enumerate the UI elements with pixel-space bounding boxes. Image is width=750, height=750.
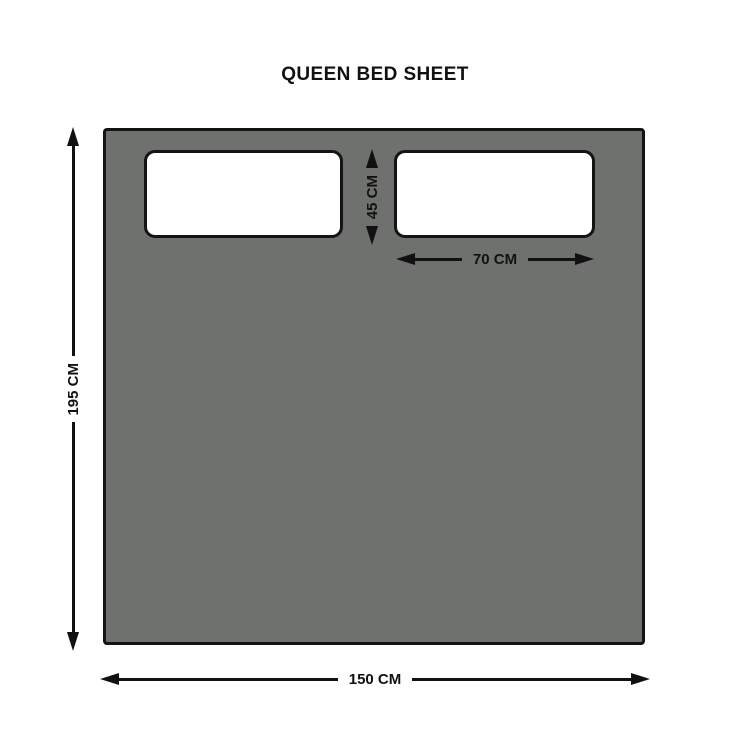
diagram-canvas: QUEEN BED SHEET 195 CM 150 CM 45 CM 70 C… — [0, 0, 750, 750]
sheet-height-label: 195 CM — [65, 363, 82, 416]
arrowhead-left-icon — [396, 253, 415, 265]
dimension-line — [72, 146, 75, 356]
arrowhead-right-icon — [575, 253, 594, 265]
dimension-line — [415, 258, 462, 261]
dimension-line — [412, 678, 631, 681]
arrowhead-right-icon — [631, 673, 650, 685]
dimension-line — [528, 258, 575, 261]
pillow-width-label: 70 CM — [473, 251, 517, 268]
diagram-title: QUEEN BED SHEET — [0, 64, 750, 86]
pillow-cutout-right — [394, 150, 595, 238]
arrowhead-left-icon — [100, 673, 119, 685]
arrowhead-down-icon — [366, 226, 378, 245]
pillow-height-label: 45 CM — [364, 175, 381, 219]
dimension-line — [72, 422, 75, 632]
dimension-pillow-width: 70 CM — [396, 248, 594, 270]
arrowhead-up-icon — [366, 149, 378, 168]
arrowhead-up-icon — [67, 127, 79, 146]
pillow-cutout-left — [144, 150, 343, 238]
dimension-sheet-width: 150 CM — [100, 668, 650, 690]
dimension-sheet-height: 195 CM — [62, 127, 84, 651]
dimension-line — [119, 678, 338, 681]
sheet-width-label: 150 CM — [349, 671, 402, 688]
dimension-pillow-height: 45 CM — [361, 149, 383, 243]
arrowhead-down-icon — [67, 632, 79, 651]
